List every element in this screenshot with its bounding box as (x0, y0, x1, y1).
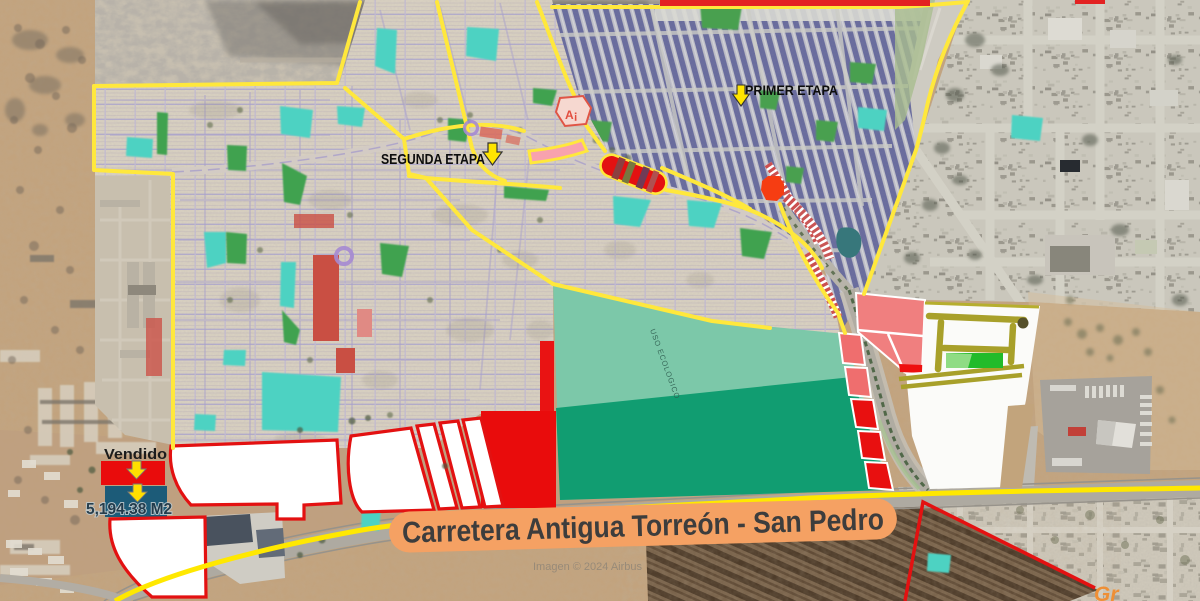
svg-text:A¡: A¡ (565, 108, 578, 122)
svg-text:PRIMER ETAPA: PRIMER ETAPA (745, 82, 838, 98)
svg-text:SEGUNDA ETAPA: SEGUNDA ETAPA (381, 151, 485, 168)
svg-text:Imagen © 2024 Airbus: Imagen © 2024 Airbus (533, 561, 643, 573)
svg-text:5,194.38 M2: 5,194.38 M2 (86, 501, 172, 518)
svg-text:Gr: Gr (1094, 583, 1120, 601)
svg-text:Vendido: Vendido (104, 446, 167, 463)
